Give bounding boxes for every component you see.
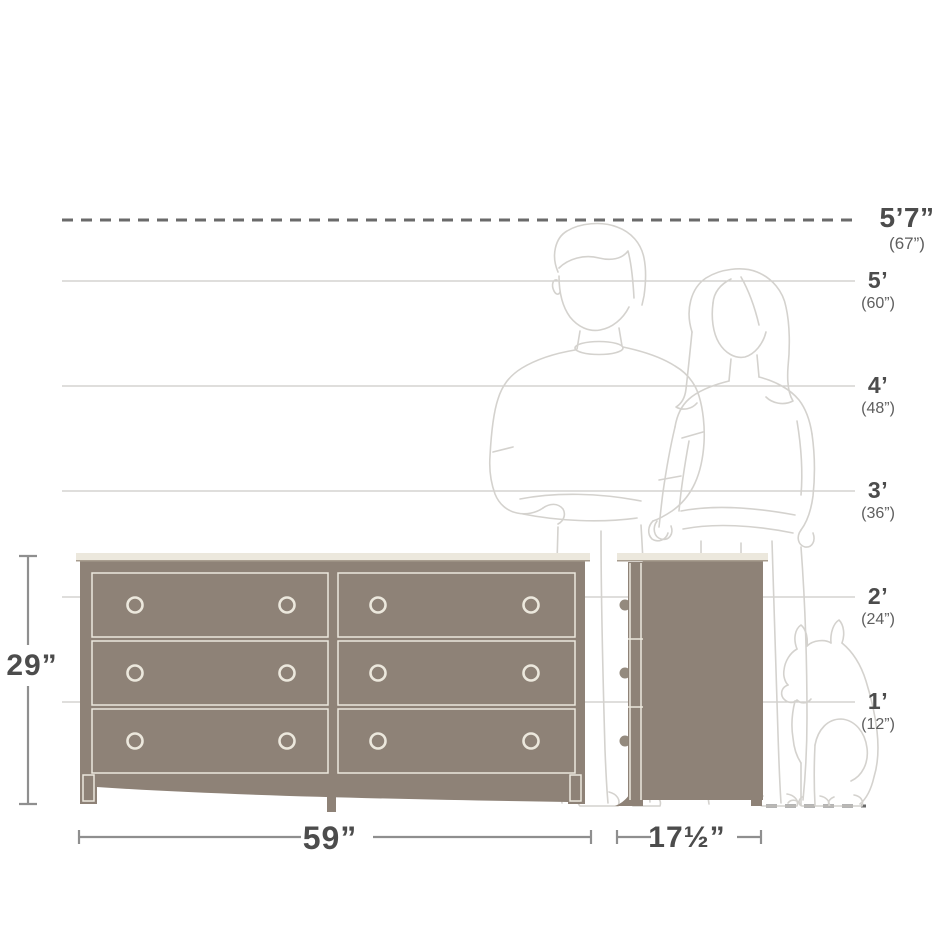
illustration-canvas bbox=[0, 0, 940, 940]
height-marker-inches: (67”) bbox=[862, 234, 940, 253]
height-marker-label: 2’ bbox=[833, 583, 923, 609]
height-marker-1ft: 1’ (12”) bbox=[833, 688, 923, 734]
height-marker-inches: (60”) bbox=[833, 294, 923, 313]
height-marker-inches: (48”) bbox=[833, 399, 923, 418]
depth-dimension-label: 17½” bbox=[632, 821, 742, 855]
height-marker-inches: (24”) bbox=[833, 610, 923, 629]
dresser-center-leg bbox=[327, 792, 336, 812]
height-marker-label: 5’ bbox=[833, 267, 923, 293]
side-top-board bbox=[617, 553, 768, 560]
side-back-foot bbox=[751, 798, 762, 806]
height-marker-label: 3’ bbox=[833, 477, 923, 503]
dresser-case bbox=[80, 560, 585, 804]
height-marker-5ft7: 5’7” (67”) bbox=[862, 203, 940, 253]
height-marker-label: 5’7” bbox=[862, 203, 940, 233]
dresser-top-board bbox=[76, 553, 590, 560]
height-marker-4ft: 4’ (48”) bbox=[833, 372, 923, 418]
dresser-front-view bbox=[76, 553, 590, 812]
height-marker-5ft: 5’ (60”) bbox=[833, 267, 923, 313]
height-marker-inches: (36”) bbox=[833, 504, 923, 523]
height-marker-inches: (12”) bbox=[833, 715, 923, 734]
dresser-side-view bbox=[615, 553, 768, 806]
height-marker-label: 4’ bbox=[833, 372, 923, 398]
height-dimension-label: 29” bbox=[3, 649, 61, 683]
width-dimension-label: 59” bbox=[285, 820, 375, 857]
height-marker-label: 1’ bbox=[833, 688, 923, 714]
height-marker-3ft: 3’ (36”) bbox=[833, 477, 923, 523]
height-marker-2ft: 2’ (24”) bbox=[833, 583, 923, 629]
side-body bbox=[643, 560, 763, 800]
dimension-illustration: 5’7” (67”) 5’ (60”) 4’ (48”) 3’ (36”) 2’… bbox=[0, 0, 940, 940]
